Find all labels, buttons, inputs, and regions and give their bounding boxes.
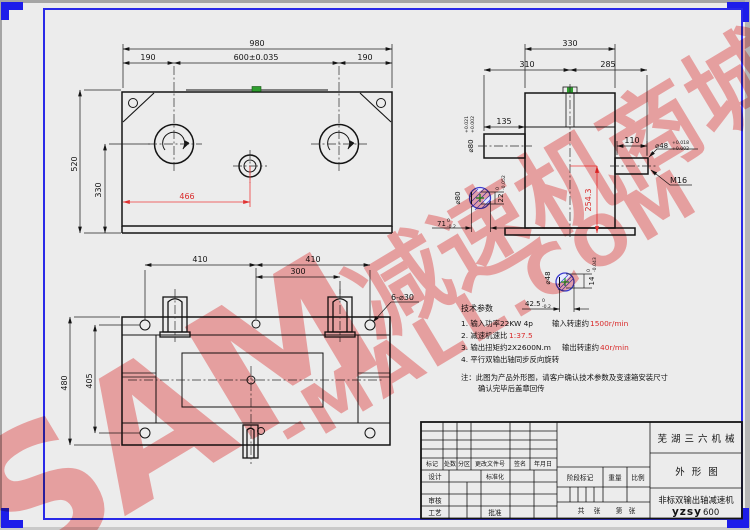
dim-410-left: 410 — [192, 255, 207, 264]
lifting-hole-left — [129, 99, 138, 108]
tech-line2: 2. 减速机速比 — [461, 331, 507, 340]
thread-m16: M16 — [670, 176, 687, 185]
sheet-total-unit: 张 — [594, 506, 601, 515]
svg-text:-0.2: -0.2 — [542, 304, 551, 310]
gusset-right — [360, 93, 391, 122]
detail-view-dia48: ⌀48 14 0 -0.043 42.5 0 -0.2 — [522, 257, 598, 312]
col-mark: 标记 — [426, 460, 438, 468]
dim-310: 310 — [519, 60, 534, 69]
col-count: 处数 — [444, 460, 456, 468]
detail-key-width-label: 14 0 -0.043 — [586, 257, 598, 285]
technical-parameters: 技术参数 1. 输入功率22KW 4p 输入转速约 1500r/min 2. 减… — [461, 303, 668, 393]
svg-text:0: 0 — [542, 298, 545, 304]
key-section-dia-label: ⌀80 — [454, 191, 462, 204]
svg-text:⌀80: ⌀80 — [467, 139, 475, 152]
tech-line1-speed-label: 输入转速约 — [552, 319, 589, 328]
tech-line3: 3. 输出扭矩约2X2600N.m — [461, 343, 551, 352]
row-design: 设计 — [428, 472, 442, 481]
tech-line3-speed-label: 输出转速约 — [562, 343, 599, 352]
tech-line4: 4. 平行双输出轴同步反向旋转 — [461, 355, 560, 364]
svg-text:+0.002: +0.002 — [470, 116, 476, 133]
detail-dia48-label: ⌀48 — [544, 271, 552, 284]
cell-stage-mark: 阶段标记 — [567, 473, 594, 482]
col-file-no: 更改文件号 — [475, 460, 505, 468]
model-number: 600 — [703, 508, 719, 518]
dim-330-side: 330 — [562, 39, 577, 48]
dim-405: 405 — [85, 373, 94, 388]
row-approve: 批准 — [488, 508, 502, 517]
company-name: 芜湖三六机械 — [657, 433, 738, 445]
title-block-texts: 标记 处数 分区 更改文件号 签名 年月日 设计 标准化 审核 工艺 批准 阶段… — [426, 433, 739, 518]
dim-480: 480 — [60, 375, 69, 390]
cell-weight: 重量 — [608, 474, 622, 482]
row-check: 审核 — [428, 496, 442, 505]
svg-text:-0.052: -0.052 — [501, 175, 507, 190]
dim-410-right: 410 — [305, 255, 320, 264]
row-standardization: 标准化 — [486, 473, 504, 481]
drawing-frame — [44, 9, 742, 519]
svg-text:-0.043: -0.043 — [592, 257, 598, 272]
model-prefix: yzsy — [672, 506, 702, 518]
tech-title: 技术参数 — [461, 303, 493, 313]
dim-110: 110 — [624, 136, 639, 145]
dim-330: 330 — [94, 182, 103, 197]
corner-mark-top-left — [1, 2, 23, 20]
svg-text:0: 0 — [586, 269, 592, 272]
dim-135: 135 — [496, 117, 511, 126]
drawing-type: 外形图 — [675, 466, 725, 478]
svg-text:+0.021: +0.021 — [464, 116, 470, 133]
key-height-71-label: 71 — [437, 220, 446, 228]
engineering-drawing-canvas: 980 190 600±0.035 190 520 330 466 — [0, 0, 750, 530]
dim-285: 285 — [600, 60, 615, 69]
sheet-no-label: 第 — [616, 506, 623, 515]
detail-key-height-label: 42.5 — [525, 300, 541, 308]
side-centerlines — [478, 84, 656, 238]
dim-466: 466 — [179, 192, 194, 201]
dia48-tol-upper: +0.018 — [672, 140, 689, 146]
col-date: 年月日 — [534, 460, 552, 468]
dim-980: 980 — [249, 39, 264, 48]
dim-300: 300 — [290, 267, 305, 276]
tech-line3-speed-value: 40r/min — [600, 343, 629, 352]
front-view — [80, 44, 392, 233]
col-zone: 分区 — [458, 460, 470, 468]
holes-note-6xd30: 6-⌀30 — [391, 293, 414, 302]
col-signature: 签名 — [514, 460, 526, 468]
cell-scale: 比例 — [631, 473, 645, 482]
svg-text:0: 0 — [495, 187, 501, 190]
row-process: 工艺 — [428, 509, 442, 517]
breather-plug — [252, 87, 261, 92]
sheet-edges — [0, 0, 750, 530]
dim-254: 254.3 — [584, 189, 593, 212]
svg-text:-0.2: -0.2 — [447, 224, 456, 230]
dim-190-left: 190 — [140, 53, 155, 62]
gusset-left — [123, 93, 154, 122]
tech-line2-value: 1:37.5 — [509, 331, 533, 340]
side-view-dimensions — [484, 44, 698, 185]
dim-520: 520 — [70, 156, 79, 171]
key-width-22-label: 22 0 -0.052 — [495, 175, 507, 202]
dim-600: 600±0.035 — [234, 53, 279, 62]
svg-text:14: 14 — [588, 276, 596, 285]
top-view — [70, 265, 419, 464]
tech-line1: 1. 输入功率22KW 4p — [461, 319, 533, 328]
input-shaft-bottom — [243, 425, 265, 458]
top-view-dim-texts: 410 410 300 480 405 6-⌀30 — [60, 255, 414, 391]
corner-mark-top-right — [727, 2, 749, 22]
tech-line1-speed-value: 1500r/min — [590, 319, 629, 328]
svg-text:22: 22 — [497, 194, 505, 203]
dia48-label: ⌀48 — [655, 142, 668, 150]
corner-marks — [1, 2, 749, 528]
sheet-no-unit: 张 — [629, 506, 636, 515]
top-view-outline — [122, 317, 390, 445]
corner-mark-bottom-left — [1, 508, 23, 528]
sheet-total-label: 共 — [578, 506, 585, 515]
lifting-hole-right — [377, 99, 386, 108]
dim-190-right: 190 — [357, 53, 372, 62]
svg-text:0: 0 — [447, 218, 450, 224]
product-name: 非标双输出轴减速机 — [658, 495, 734, 505]
dia80-tol-label: ⌀80 +0.021 +0.002 — [464, 116, 476, 153]
front-view-dimensions — [80, 44, 392, 233]
tech-note-line1: 注：此图为产品外形图，请客户确认技术参数及变速箱安装尺寸 — [461, 373, 668, 382]
dia48-tol-lower: +0.002 — [672, 146, 689, 152]
tech-note-line2: 确认完毕后盖章回传 — [478, 384, 545, 393]
cad-drawing-sheet: 980 190 600±0.035 190 520 330 466 — [0, 0, 750, 530]
